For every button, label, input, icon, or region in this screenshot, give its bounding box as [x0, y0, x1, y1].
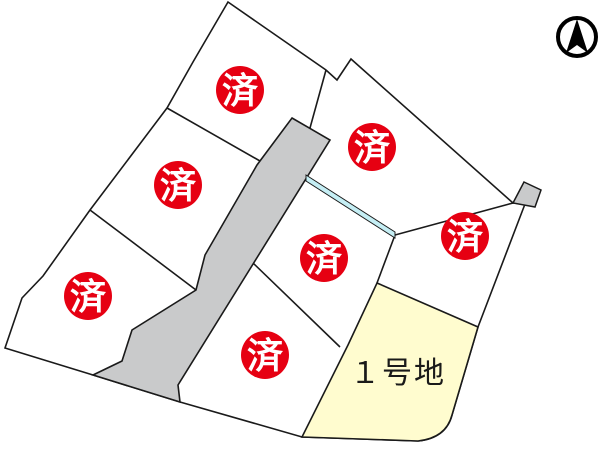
sold-badge-label: 済 — [354, 127, 390, 168]
sold-badge-label: 済 — [447, 216, 483, 257]
road-wedge — [513, 182, 541, 207]
sold-badge-label: 済 — [160, 165, 196, 206]
north-arrow-icon — [558, 18, 596, 56]
sold-badge-label: 済 — [222, 70, 258, 111]
lot-map: １号地 済済済済済済済 — [0, 0, 600, 458]
sold-badge-label: 済 — [70, 276, 106, 317]
lot-1-label: １号地 — [350, 357, 446, 390]
sold-badge-label: 済 — [247, 335, 283, 376]
sold-badge-label: 済 — [306, 238, 342, 279]
lot-map-canvas: １号地 済済済済済済済 — [0, 0, 600, 458]
